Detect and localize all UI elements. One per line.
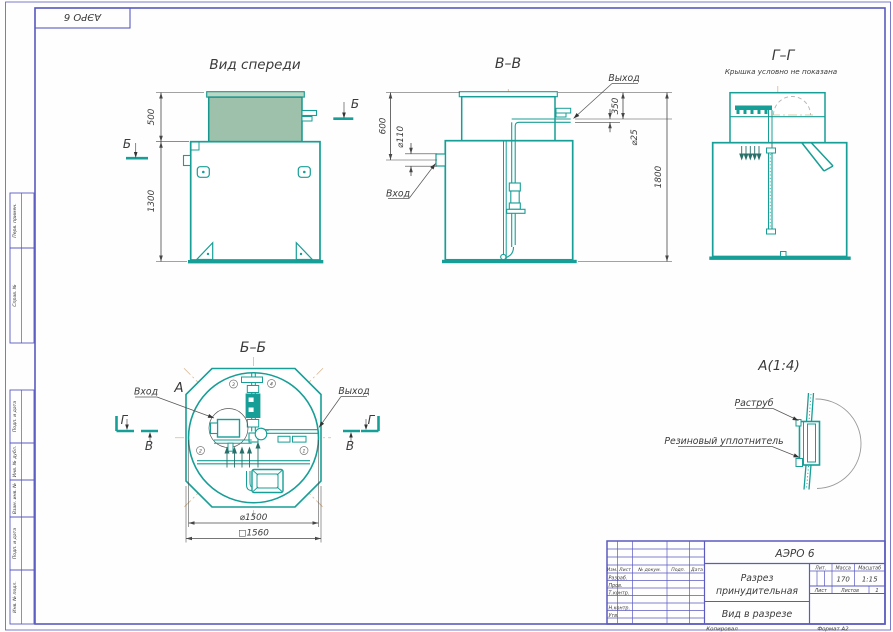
frame-col-label: Инв. № дубл. bbox=[12, 446, 18, 477]
view-gg-title: Г–Г bbox=[772, 48, 796, 64]
tb-name-line1: Разрез bbox=[741, 573, 774, 584]
tb-mass-value: 170 bbox=[837, 576, 851, 584]
front-base bbox=[188, 260, 323, 263]
detail-labels: Раструб Резиновый уплотнитель bbox=[664, 398, 799, 458]
tb-name-line2: принудительная bbox=[716, 586, 798, 597]
gg-riser bbox=[730, 93, 825, 143]
bb-blower-box bbox=[252, 470, 283, 493]
detail-boundary-arc bbox=[816, 399, 862, 489]
marker-g-right: Г bbox=[368, 413, 376, 427]
dim-d25: ⌀25 bbox=[630, 129, 640, 146]
bb-label-inlet: Вход bbox=[134, 387, 158, 398]
label-socket: Раструб bbox=[735, 398, 774, 409]
callout-1: 1 bbox=[303, 448, 306, 454]
frame-col-label: Взам. инв. № bbox=[12, 483, 18, 514]
view-bb-title: Б–Б bbox=[240, 340, 266, 356]
marker-v-left: В bbox=[145, 439, 153, 453]
tb-doc-code: АЭРО 6 bbox=[774, 548, 814, 560]
callout-2: 2 bbox=[199, 448, 202, 454]
tb-row-check: Пров. bbox=[609, 583, 623, 589]
tb-col-date: Дата bbox=[690, 567, 703, 573]
tb-lit-label: Лит. bbox=[814, 566, 826, 572]
tb-row-approve: Утв. bbox=[609, 613, 619, 619]
view-section-gg: Г–Г Крышка условно не показана bbox=[709, 48, 850, 260]
dim-600: 600 bbox=[379, 117, 389, 134]
dim-350: 350 bbox=[611, 97, 621, 114]
frame-columns: Перв. примен. Справ. № Подп. и дата Инв.… bbox=[10, 193, 34, 624]
dim-1800: 1800 bbox=[654, 165, 664, 188]
view-front-title: Вид спереди bbox=[209, 57, 300, 73]
tb-row-ncontrol: Н.контр. bbox=[609, 605, 630, 611]
dim-d1500: ⌀1500 bbox=[240, 513, 268, 523]
vv-body bbox=[445, 141, 572, 260]
label-seal: Резиновый уплотнитель bbox=[664, 436, 783, 447]
callout-4: 4 bbox=[270, 381, 273, 387]
vv-label-outlet: Выход bbox=[608, 73, 639, 84]
gg-drain bbox=[781, 252, 787, 257]
tb-col-sign: Подп. bbox=[671, 567, 685, 573]
vv-label-inlet: Вход bbox=[386, 189, 410, 200]
front-lid bbox=[209, 97, 302, 142]
tb-row-dev: Разраб. bbox=[609, 575, 628, 581]
bb-inlet-box bbox=[218, 420, 240, 438]
tb-sheets-label: Листов bbox=[840, 588, 859, 594]
frame-col-label: Подп. и дата bbox=[12, 528, 18, 559]
front-lid-rim bbox=[207, 92, 305, 97]
drawing-canvas: АЭРО 6 Перв. примен. Справ. № Подп. и да… bbox=[0, 0, 893, 632]
view-vv-title: В–В bbox=[495, 56, 521, 72]
detail-a-title: А(1:4) bbox=[757, 358, 800, 374]
tb-mass-label: Масса bbox=[836, 566, 851, 572]
tb-view-name: Вид в разрезе bbox=[722, 609, 793, 620]
footer-format: Формат А2 bbox=[817, 627, 849, 632]
tb-sheets-value: 1 bbox=[875, 588, 879, 594]
view-section-bb: Б–Б bbox=[117, 340, 379, 543]
vv-inlet-stub bbox=[436, 154, 445, 166]
view-section-vv: В–В Выход bbox=[379, 56, 673, 263]
marker-b-right: Б bbox=[351, 97, 359, 111]
bb-detail-letter: А bbox=[173, 380, 183, 396]
detail-socket bbox=[796, 420, 820, 467]
tb-sheet-label: Лист bbox=[814, 588, 827, 594]
dim-d110: ⌀110 bbox=[396, 126, 406, 148]
tb-scale-value: 1:15 bbox=[862, 576, 878, 584]
footer-copy: Копировал bbox=[706, 627, 738, 632]
drawing-sheet: АЭРО 6 Перв. примен. Справ. № Подп. и да… bbox=[0, 0, 893, 632]
gg-base bbox=[709, 257, 850, 260]
tb-row-tcontrol: Т.контр. bbox=[609, 590, 630, 596]
bb-label-outlet: Выход bbox=[338, 386, 369, 397]
view-gg-note: Крышка условно не показана bbox=[725, 67, 837, 76]
tb-col-doc: № докум. bbox=[637, 567, 661, 573]
tb-scale-label: Масштаб bbox=[858, 566, 881, 572]
frame-col-label: Инв. № подл. bbox=[12, 581, 18, 613]
vv-pump bbox=[509, 183, 520, 191]
dim-sq1560: □1560 bbox=[238, 529, 269, 539]
callout-3: 3 bbox=[232, 382, 235, 388]
view-front: Вид спереди 500 1300 bbox=[123, 57, 359, 263]
front-body bbox=[191, 142, 320, 260]
marker-v-right: В bbox=[346, 439, 354, 453]
frame-col-label: Перв. примен. bbox=[12, 203, 18, 238]
marker-b-left: Б bbox=[123, 137, 131, 151]
tb-col-list: Лист bbox=[618, 567, 631, 573]
front-left-tab bbox=[184, 156, 191, 166]
view-detail-a: А(1:4) Раструб Резиновый уплотнитель bbox=[664, 358, 861, 490]
frame-col-label: Справ. № bbox=[12, 284, 18, 307]
dim-500: 500 bbox=[147, 108, 157, 125]
tb-col-izm: Изм. bbox=[607, 567, 618, 573]
stamp-text: АЭРО 6 bbox=[64, 11, 102, 22]
front-lid-fitting bbox=[302, 111, 317, 116]
frame-col-label: Подп. и дата bbox=[12, 401, 18, 432]
vv-base bbox=[442, 260, 577, 263]
title-block: АЭРО 6 Разрез принудительная Вид в разре… bbox=[607, 541, 885, 624]
dim-1300: 1300 bbox=[147, 189, 157, 212]
